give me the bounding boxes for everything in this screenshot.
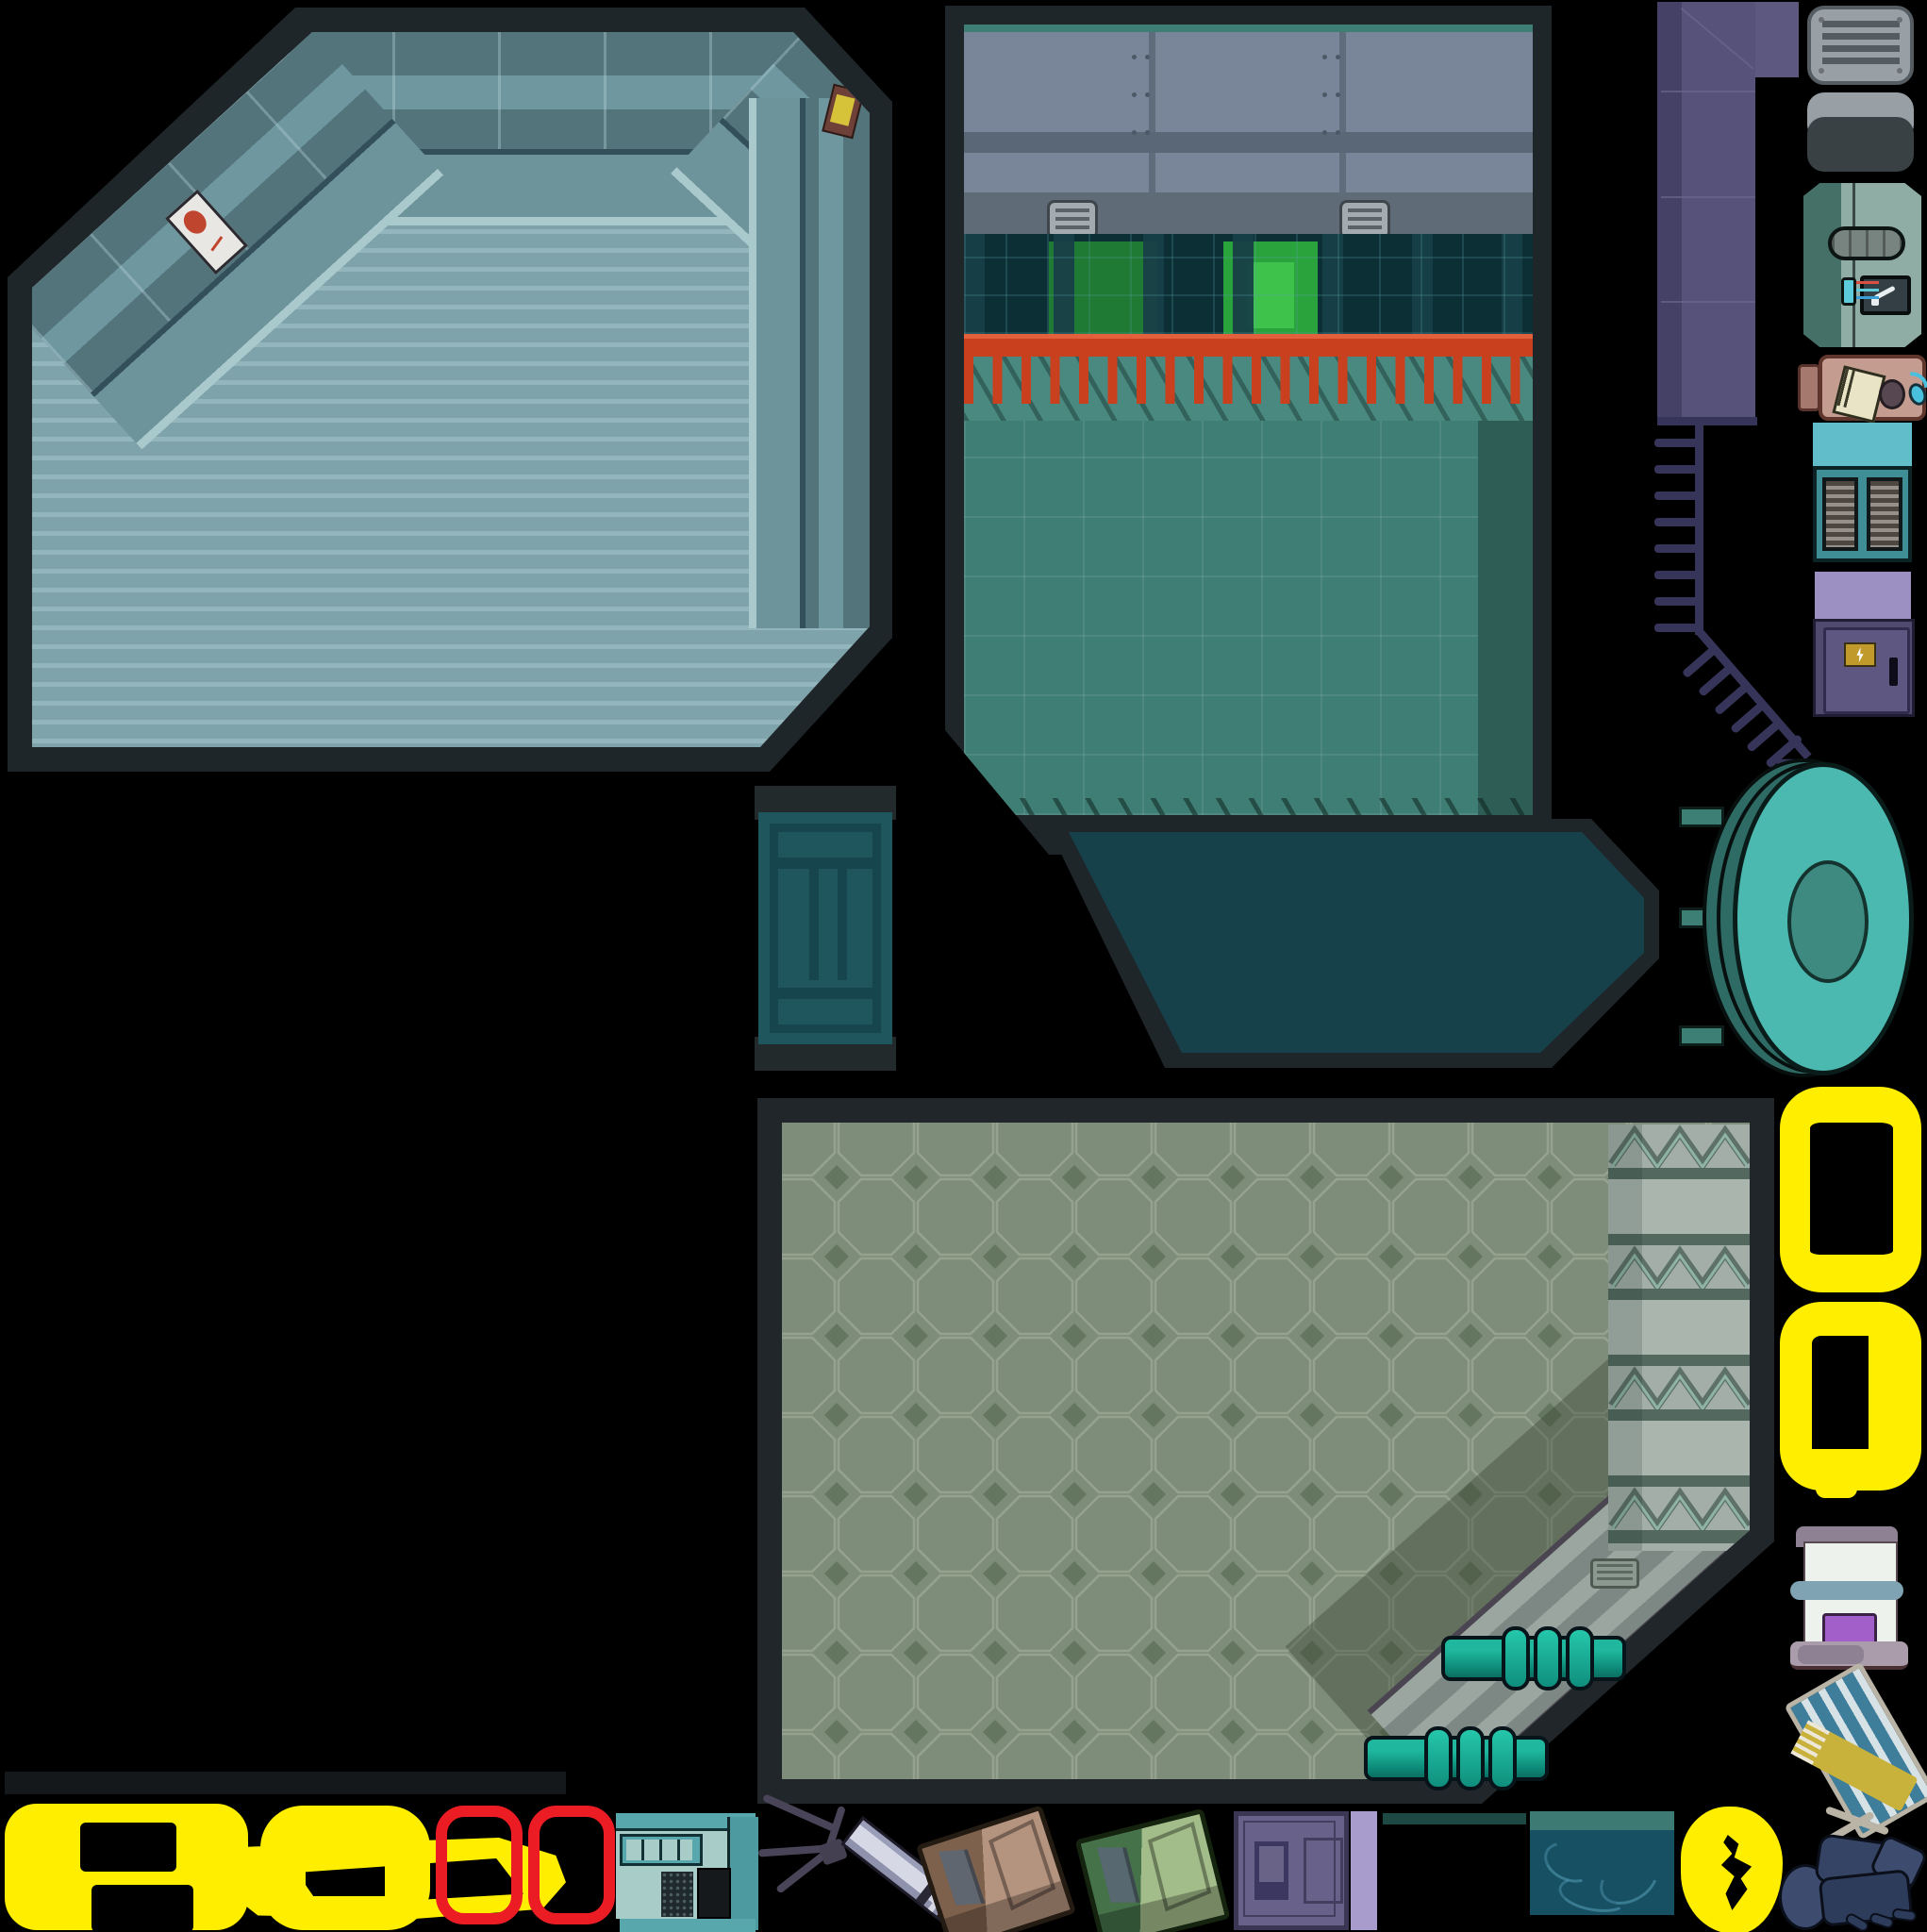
pipe-ring [1488, 1726, 1517, 1790]
machine-band [1790, 1581, 1903, 1600]
crate-brown [916, 1805, 1076, 1932]
breaker-panel [1813, 619, 1915, 717]
scanner-fold-line [1852, 183, 1855, 347]
crate-seam [939, 1850, 985, 1906]
rivet [1897, 17, 1902, 23]
console-bottom-bar [620, 1919, 756, 1932]
red-manifold-pipe [964, 334, 1533, 357]
lightning-bolt-icon [1854, 647, 1866, 662]
truss-shade [1608, 1124, 1642, 1551]
purple-edge [1657, 2, 1682, 417]
reactor-machinery-window [964, 234, 1533, 334]
deck-chair [1792, 1668, 1927, 1842]
purple-wall-panel [1234, 1811, 1377, 1932]
rivet [1819, 17, 1824, 23]
pad-stub-pipe [1679, 1025, 1724, 1046]
door-lintel [778, 858, 872, 869]
chair-back [1798, 364, 1820, 411]
ladder-rung [1654, 518, 1698, 526]
ladder-rung [1654, 465, 1698, 474]
pipe-ring [1424, 1726, 1453, 1790]
ladder-rung [1654, 491, 1698, 500]
rivet [1819, 68, 1824, 74]
panel-icon [1871, 298, 1879, 306]
wall-vent-grille [1807, 6, 1914, 85]
floor-edge-hatch [964, 798, 1533, 815]
cabinet-door [1867, 477, 1902, 551]
mask-hole [80, 1823, 176, 1872]
lavender-strip [1351, 1811, 1377, 1930]
room-cafe-floor [8, 8, 894, 774]
teal-pipe [1441, 1628, 1626, 1689]
cabinet-door [1822, 477, 1858, 551]
ladder-rung [1654, 571, 1698, 579]
water-top-band [1530, 1811, 1674, 1830]
room-tile [757, 1098, 1776, 1804]
panel-seam [1149, 32, 1155, 192]
lightning-label [1844, 642, 1876, 667]
breaker-handle [1889, 658, 1898, 686]
highlight-mask-rect-tab [1780, 1302, 1921, 1491]
cafe-wall-right [749, 98, 870, 628]
door-frame [770, 824, 881, 1033]
ladder-rung [1698, 662, 1736, 697]
wire-connector [1841, 277, 1856, 306]
ladder-rung [1682, 643, 1720, 678]
purple-corner-wall [1657, 2, 1799, 425]
shadow-bar [5, 1772, 566, 1794]
truss-wall [1608, 1124, 1750, 1551]
pad-stub-pipe [1679, 807, 1724, 827]
machinery-grid [964, 234, 1533, 334]
rivet-dots [1132, 55, 1137, 59]
highlight-mask-blob [1681, 1807, 1783, 1932]
floor-vent-icon [1590, 1558, 1639, 1589]
poster-scribble [205, 231, 223, 251]
crate-seam [1097, 1848, 1139, 1903]
keyboard [661, 1872, 693, 1917]
purple-seam [1661, 91, 1755, 92]
console-grill [620, 1834, 703, 1866]
scanner-capsule-port [1828, 226, 1905, 260]
ladder-rung [1654, 439, 1698, 447]
rivet [1897, 68, 1902, 74]
round-pad [1679, 755, 1924, 1080]
room-reactor [945, 6, 1552, 855]
wire-blue [1854, 296, 1879, 299]
purple-seam [1661, 196, 1755, 198]
mask-hole [91, 1885, 193, 1932]
navy-claw-prop [1779, 1836, 1927, 1932]
highlight-mask-ring [260, 1806, 430, 1930]
ladder-rung [1714, 681, 1753, 716]
wire-cyan [1854, 289, 1879, 291]
panel-slot-outline [1304, 1838, 1343, 1904]
lavender-box [1815, 572, 1911, 619]
tile-room-inner [757, 1098, 1776, 1804]
teal-pipe [1364, 1728, 1549, 1789]
cabinet-header [1813, 423, 1912, 468]
pipe-ring [1566, 1626, 1594, 1690]
mask-blob-hole [1715, 1835, 1758, 1910]
water-tile [1530, 1811, 1674, 1915]
sliding-door [755, 786, 896, 1071]
teal-bar [1383, 1813, 1526, 1824]
ladder-rung [1654, 624, 1698, 632]
door-mullion [838, 869, 847, 980]
door-sill [778, 988, 872, 999]
reactor-grid-floor [964, 421, 1533, 815]
vent-slats [1822, 21, 1900, 70]
room-cafe [8, 8, 894, 774]
telescope [753, 1804, 927, 1932]
ladder-rung [1654, 544, 1698, 553]
highlight-mask-red-pair [436, 1806, 617, 1926]
pipe-ring [1534, 1626, 1562, 1690]
red-ring [528, 1806, 615, 1924]
scanner-side [1803, 183, 1841, 347]
pipe-ring [1502, 1626, 1530, 1690]
poster-red-circle-icon [179, 206, 211, 238]
pipe-ladder [1653, 420, 1822, 764]
purple-arm [1755, 2, 1799, 77]
reactor-inner [964, 25, 1533, 815]
panel-slot [1254, 1841, 1288, 1900]
highlight-mask-tab [1816, 1483, 1857, 1498]
louver-cabinet [1813, 423, 1912, 562]
yellow-sign-face [830, 94, 856, 126]
monitor-screen [697, 1868, 731, 1919]
door-mullion [809, 869, 819, 980]
scanner-machine [1803, 183, 1921, 347]
purple-seam [1661, 301, 1755, 303]
ladder-rung [1746, 718, 1785, 753]
red-ring [436, 1806, 523, 1924]
ladder-diagonal [1695, 627, 1812, 759]
crate-green [1075, 1808, 1231, 1932]
pipe-ring [1456, 1726, 1485, 1790]
claw-leg [1891, 1907, 1917, 1923]
ladder-rung [1730, 699, 1769, 734]
reactor-lower-fill [1025, 819, 1676, 1102]
highlight-mask-rect [1780, 1087, 1921, 1292]
sprite-sheet-canvas [0, 0, 1927, 1932]
computer-console-desk [616, 1813, 756, 1932]
red-manifold-prongs [964, 357, 1533, 404]
wire-red [1854, 281, 1879, 284]
reactor-metal-wall [964, 32, 1533, 234]
towel-machine [1790, 1526, 1908, 1670]
panel-seam [1339, 32, 1346, 192]
study-desk [1798, 355, 1927, 423]
floor-dark-band [1478, 421, 1533, 815]
ladder-rung [1654, 597, 1698, 606]
machine-base-shade [1798, 1645, 1864, 1664]
reactor-lower-platform [1025, 819, 1676, 1102]
closed-vent-lid [1807, 117, 1914, 172]
pad-center [1787, 860, 1869, 983]
